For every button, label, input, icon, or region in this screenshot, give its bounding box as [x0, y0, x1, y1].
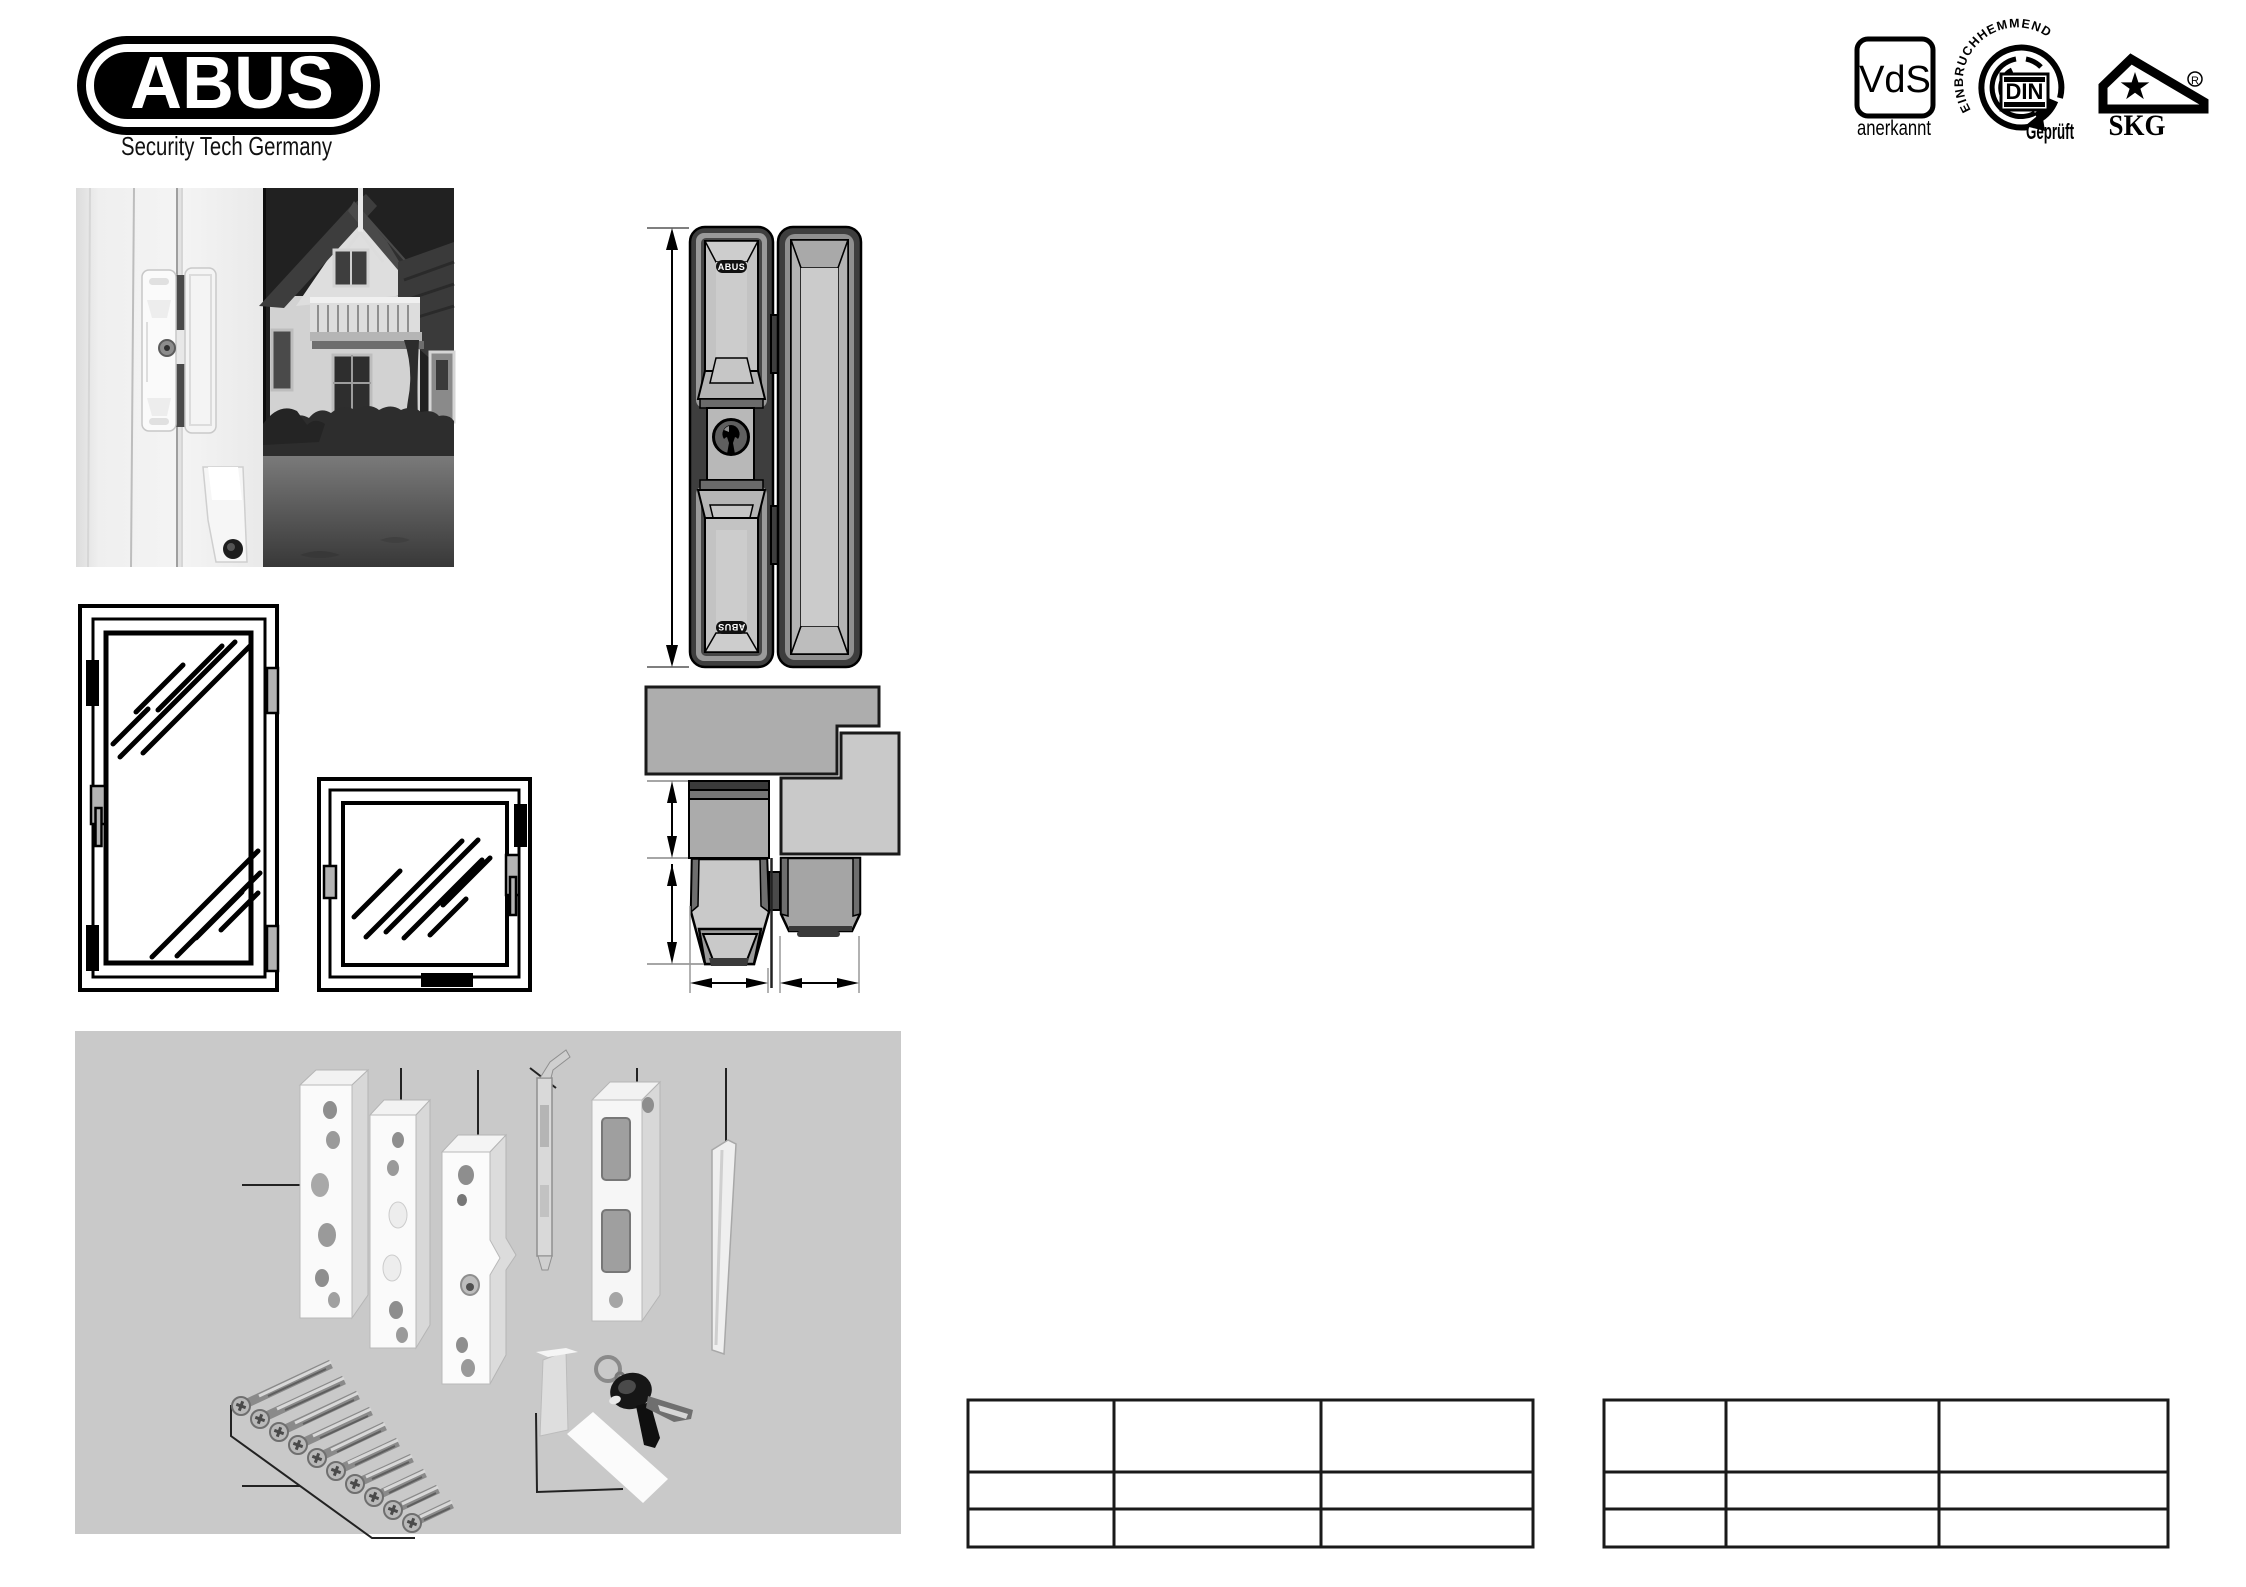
- svg-text:anerkannt: anerkannt: [1857, 117, 1931, 140]
- svg-text:SKG: SKG: [2109, 109, 2166, 142]
- svg-text:Geprüft: Geprüft: [2026, 119, 2074, 144]
- svg-text:VdS: VdS: [1859, 59, 1931, 101]
- svg-text:ABUS: ABUS: [718, 622, 746, 632]
- svg-text:DIN: DIN: [2006, 79, 2044, 104]
- svg-text:Security Tech Germany: Security Tech Germany: [121, 131, 332, 161]
- svg-text:ABUS: ABUS: [130, 41, 334, 124]
- svg-text:ABUS: ABUS: [718, 262, 746, 272]
- svg-text:R: R: [2191, 75, 2199, 87]
